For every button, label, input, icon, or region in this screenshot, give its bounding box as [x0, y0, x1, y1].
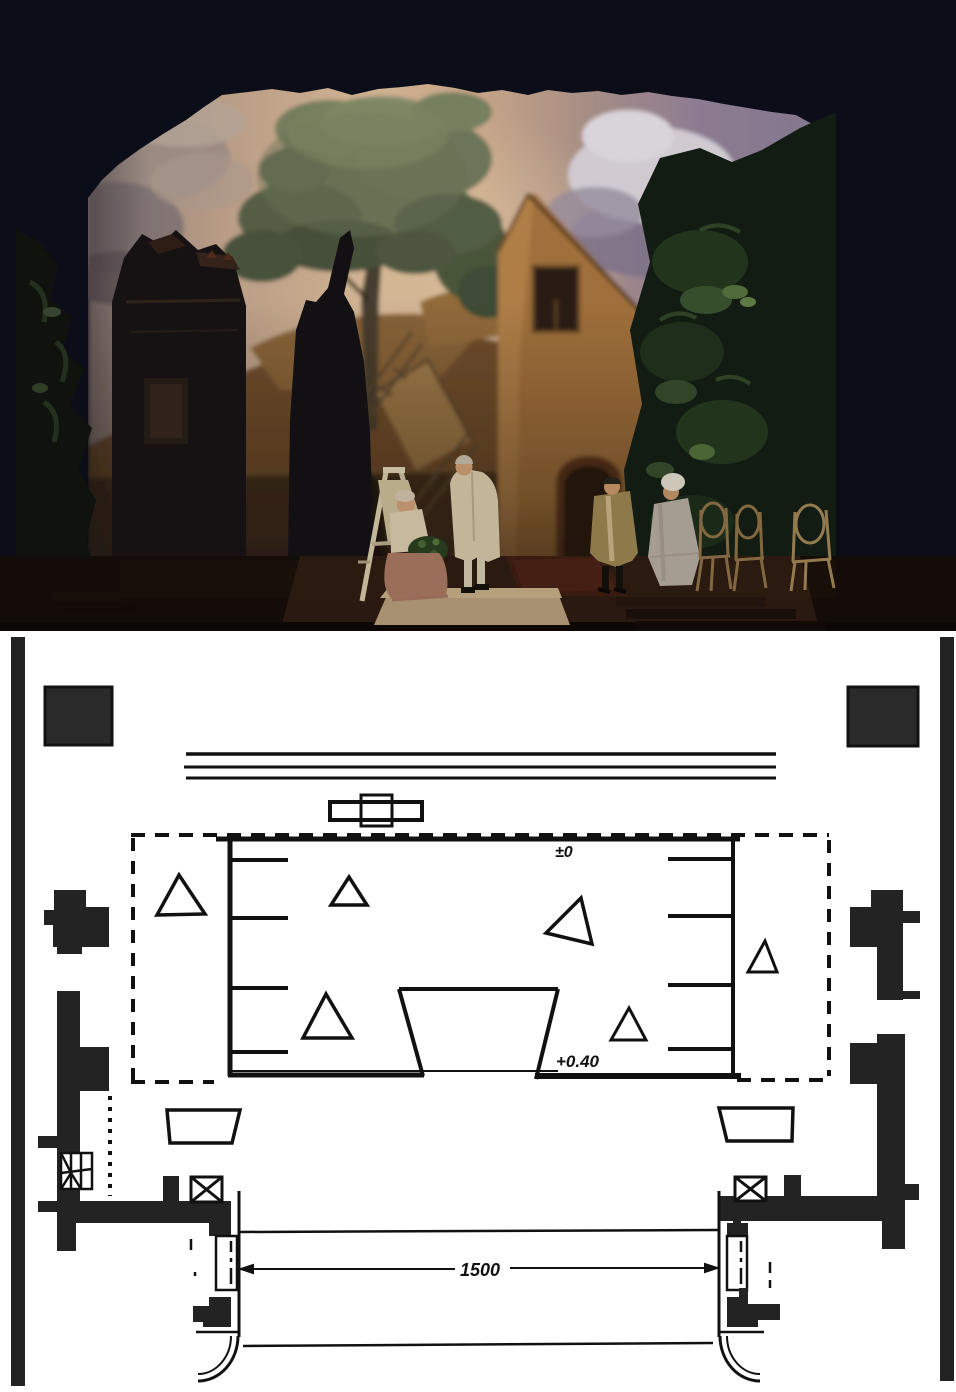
- svg-text:+0.40: +0.40: [556, 1052, 600, 1071]
- svg-text:1500: 1500: [460, 1260, 500, 1280]
- svg-text:±0: ±0: [555, 844, 573, 861]
